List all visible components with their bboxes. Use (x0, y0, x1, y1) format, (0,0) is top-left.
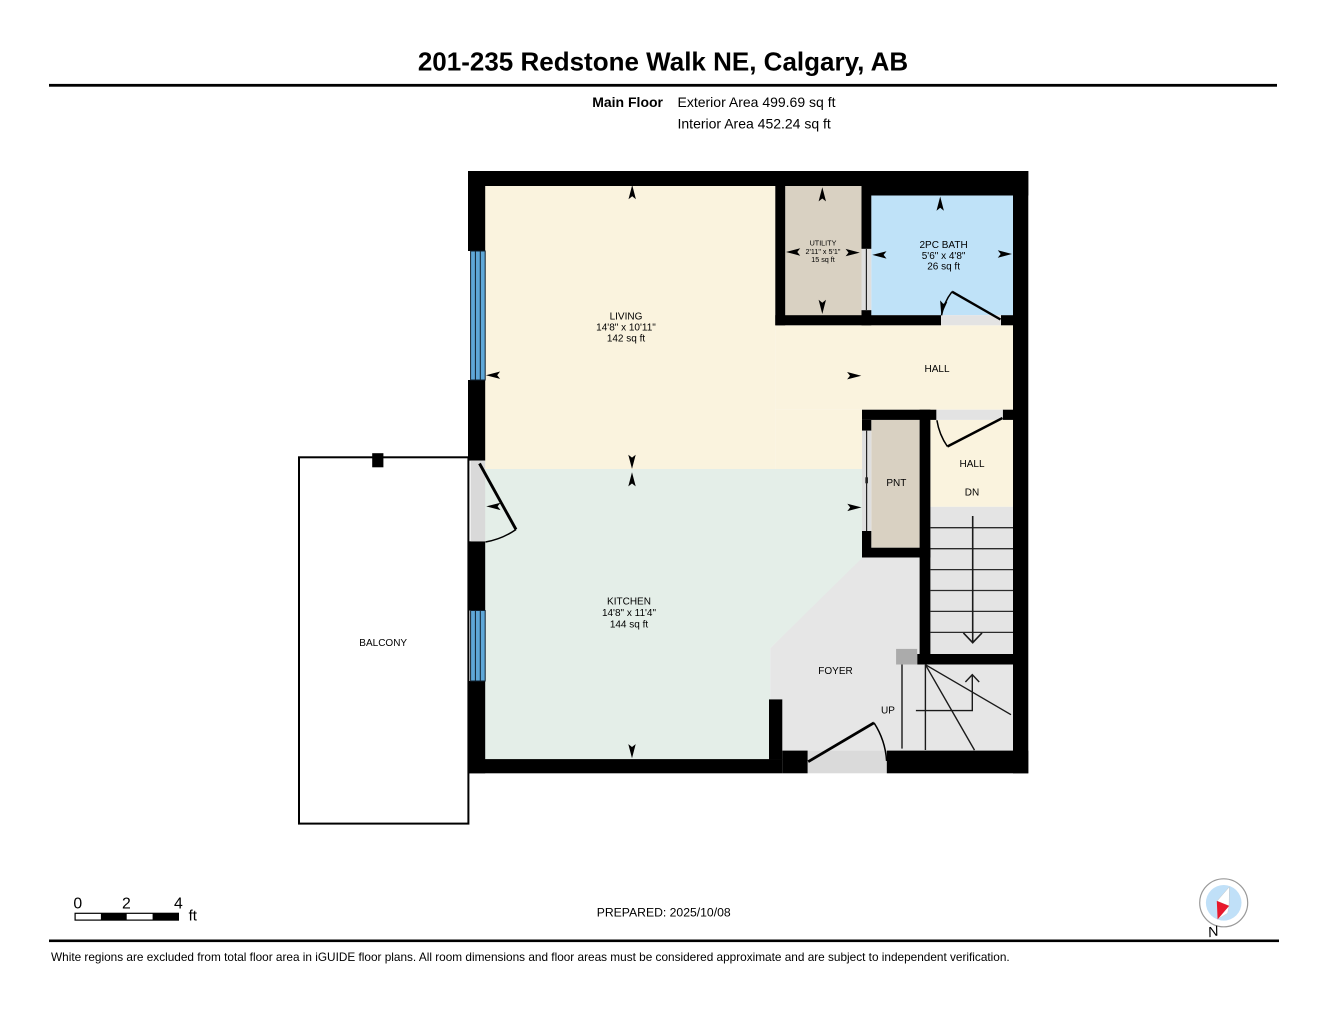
svg-text:Main Floor: Main Floor (592, 94, 663, 110)
svg-text:UP: UP (881, 706, 895, 717)
svg-text:14'8" x 10'11": 14'8" x 10'11" (596, 323, 656, 334)
svg-text:BALCONY: BALCONY (359, 638, 407, 649)
svg-text:2PC BATH: 2PC BATH (920, 240, 968, 251)
svg-text:0: 0 (73, 896, 82, 913)
svg-text:HALL: HALL (959, 459, 984, 470)
svg-text:144 sq ft: 144 sq ft (610, 619, 649, 630)
svg-text:5'6" x 4'8": 5'6" x 4'8" (922, 251, 966, 262)
svg-text:4: 4 (174, 896, 183, 913)
svg-text:DN: DN (965, 488, 979, 499)
svg-text:Interior Area 452.24 sq ft: Interior Area 452.24 sq ft (678, 116, 831, 132)
svg-text:142 sq ft: 142 sq ft (607, 333, 646, 344)
svg-text:KITCHEN: KITCHEN (607, 596, 651, 607)
svg-text:HALL: HALL (924, 364, 949, 375)
svg-text:14'8" x 11'4": 14'8" x 11'4" (602, 608, 657, 619)
svg-text:15 sq ft: 15 sq ft (811, 255, 835, 264)
svg-text:FOYER: FOYER (818, 666, 852, 677)
svg-text:PNT: PNT (886, 478, 906, 489)
svg-text:26 sq ft: 26 sq ft (927, 262, 960, 273)
svg-text:2: 2 (122, 896, 131, 913)
svg-text:LIVING: LIVING (610, 311, 643, 322)
svg-text:PREPARED: 2025/10/08: PREPARED: 2025/10/08 (597, 906, 731, 920)
svg-text:201-235 Redstone Walk NE, Calg: 201-235 Redstone Walk NE, Calgary, AB (418, 47, 908, 77)
svg-text:White regions are excluded fro: White regions are excluded from total fl… (51, 950, 1010, 964)
svg-text:Exterior Area 499.69 sq ft: Exterior Area 499.69 sq ft (678, 94, 836, 110)
svg-text:ft: ft (189, 908, 198, 925)
